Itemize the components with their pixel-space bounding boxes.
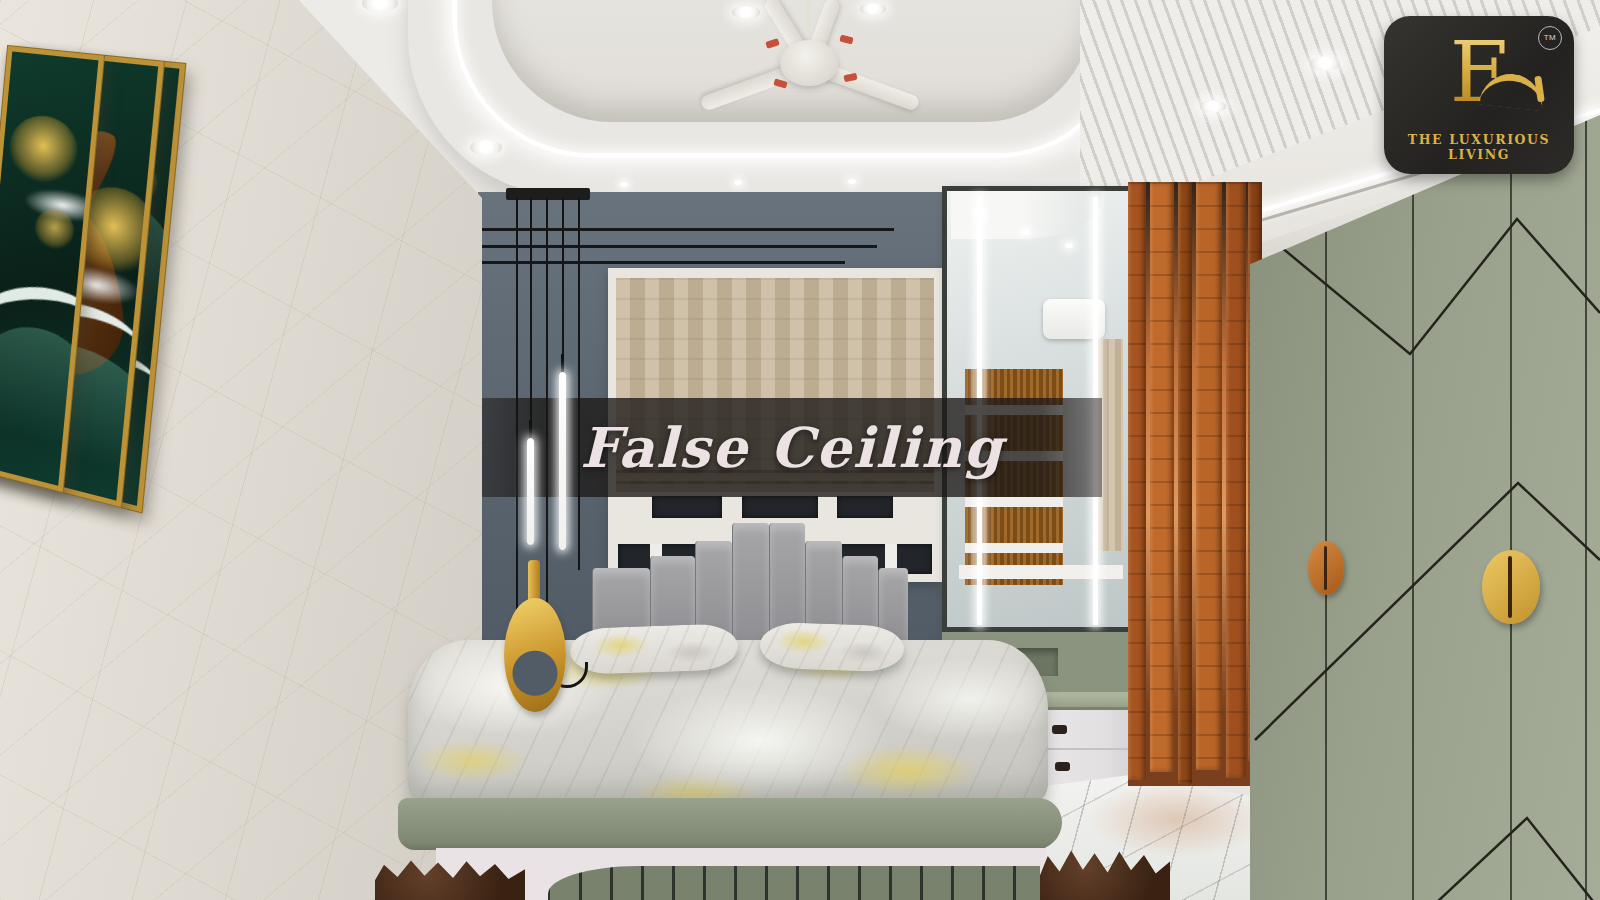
mirror-reflection-light (1021, 229, 1030, 235)
recessed-light (732, 6, 760, 19)
wood-plank (1150, 182, 1174, 772)
spotlight (734, 180, 742, 185)
trademark-badge: TM (1538, 26, 1562, 50)
bed-platform (398, 798, 1062, 850)
wall-line-decor (478, 245, 877, 248)
pendant-tip (529, 420, 532, 438)
handle-slit (1324, 546, 1327, 590)
window-pane (652, 496, 722, 518)
pendant-cable (578, 198, 580, 570)
recessed-light (1310, 56, 1340, 71)
brand-name: THE LUXURIOUS LIVING (1384, 132, 1574, 162)
wall-line-decor (478, 228, 894, 231)
drawer-knob (1055, 762, 1070, 771)
pendant-led-tube (559, 372, 566, 550)
fan-hub (780, 40, 838, 86)
pillow-right (759, 622, 905, 673)
pendant-cable (530, 198, 532, 420)
spotlight (848, 179, 856, 184)
bedroom-render: False Ceiling F TM THE LUXURIOUS LIVING (0, 0, 1600, 900)
headboard-panel (732, 523, 769, 648)
bed-slat-panel (548, 866, 1040, 900)
wood-plank (1226, 182, 1246, 778)
spotlight (620, 182, 628, 187)
wood-plank (1128, 182, 1146, 780)
mirror-reflection-light (1065, 243, 1073, 248)
pillow-left (569, 623, 739, 675)
caption-banner: False Ceiling (482, 398, 1102, 497)
handle-slit (1508, 556, 1512, 618)
recessed-light (860, 3, 886, 15)
window-pane (837, 496, 893, 518)
wood-plank (1178, 182, 1192, 784)
pendant-cable (562, 198, 564, 354)
pendant-cable (516, 198, 518, 612)
wood-slat-partition (1128, 182, 1262, 786)
wood-plank (1196, 182, 1222, 770)
brand-logo: F TM THE LUXURIOUS LIVING (1384, 16, 1574, 174)
drawer-knob (1052, 725, 1067, 734)
window-pane (742, 496, 818, 518)
pendant-led-tube (527, 438, 534, 545)
caption-text: False Ceiling (580, 415, 1004, 480)
mirror-reflection-desk (959, 565, 1123, 579)
wall-line-decor (478, 261, 845, 264)
recessed-light (1200, 100, 1226, 113)
gold-vase (504, 598, 566, 712)
pendant-tip (561, 354, 564, 372)
